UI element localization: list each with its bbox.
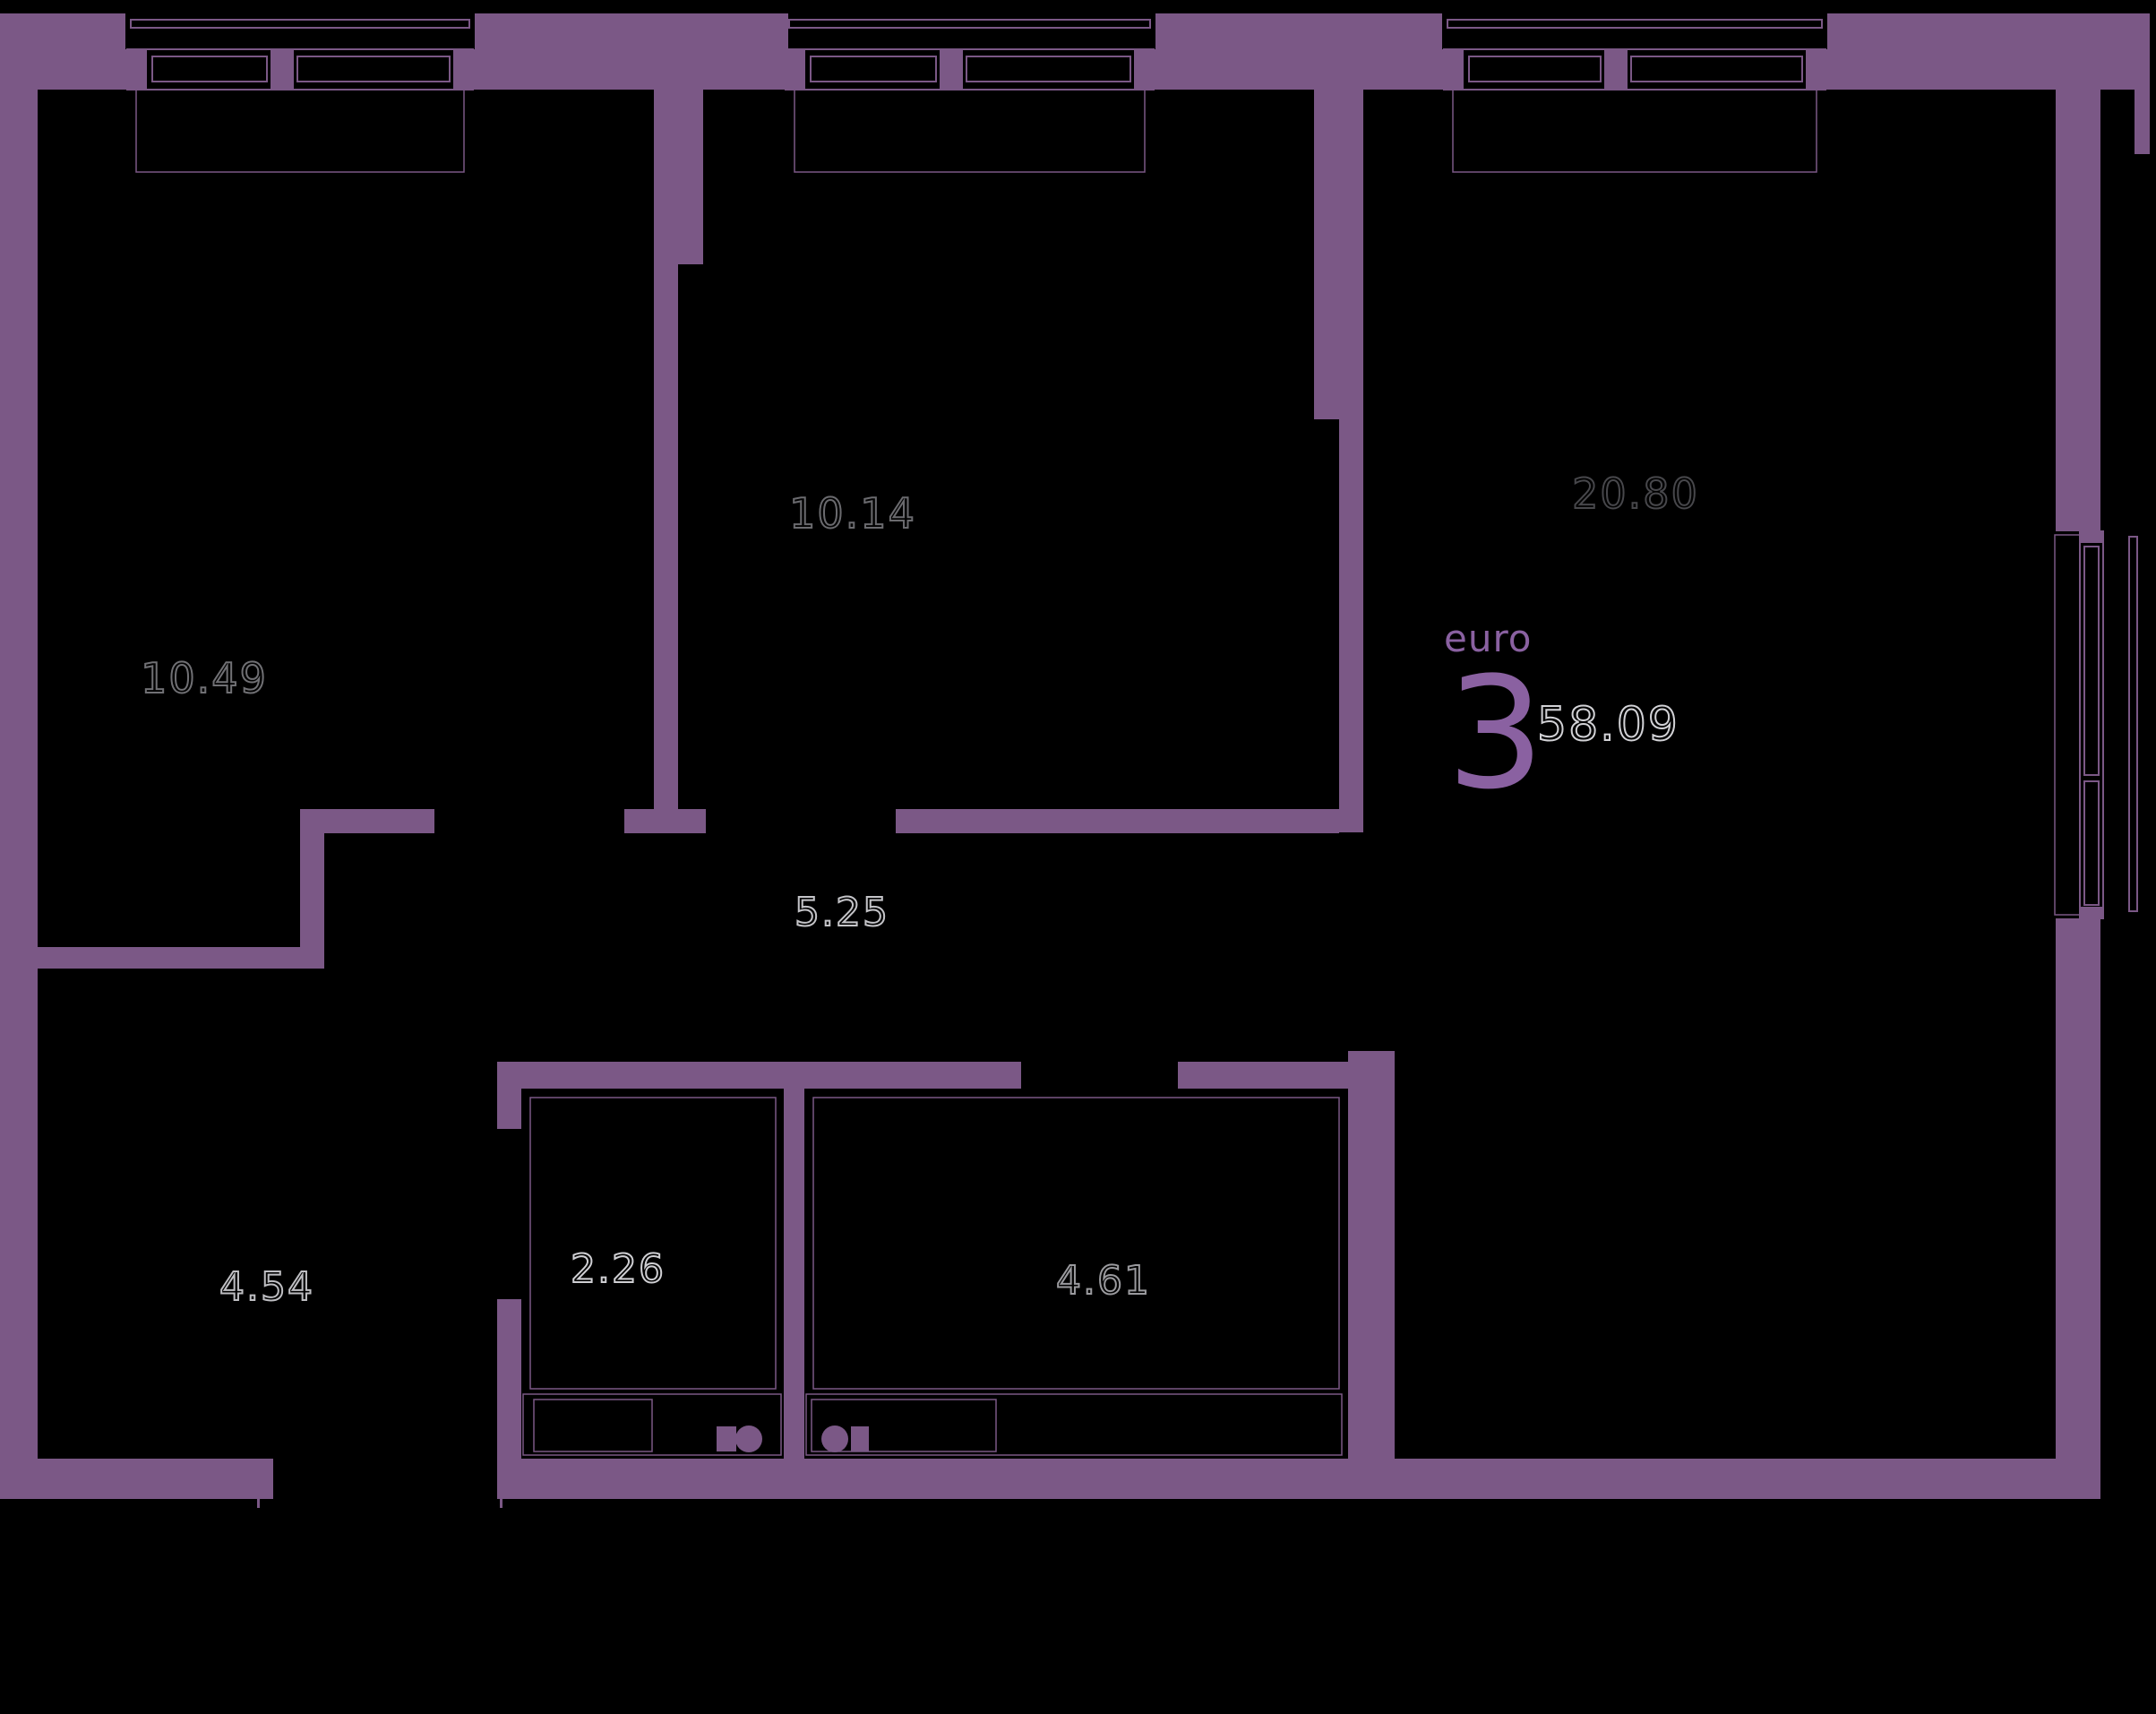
room-inner-outline	[530, 1098, 776, 1389]
window-sill	[136, 90, 464, 172]
window-blocks	[125, 49, 2103, 918]
window-2	[786, 20, 1154, 172]
wall-segment	[497, 1089, 521, 1129]
wall-segment	[784, 1089, 804, 1459]
window-frame	[2080, 531, 2103, 918]
window-frame	[1444, 49, 1825, 90]
wall-segment	[1827, 13, 2150, 90]
window-sill	[1453, 90, 1817, 172]
window-endcap	[784, 49, 805, 90]
duct-strip	[806, 1394, 1342, 1455]
unit-rooms-count: 3	[1447, 643, 1544, 823]
wall-segment	[497, 1062, 1021, 1089]
apartment-floor-plan: 10.49 10.14 20.80 5.25 2.26 4.61 4.54 eu…	[0, 0, 2156, 1714]
window-frame	[786, 49, 1154, 90]
door-post	[851, 1426, 869, 1451]
wall-segment	[300, 809, 434, 833]
wall-segment	[654, 79, 703, 264]
wall-segment	[2056, 90, 2100, 531]
room-area-labels: 10.49 10.14 20.80 5.25 2.26 4.61 4.54	[141, 469, 1699, 1310]
door-knob-icon	[821, 1425, 848, 1452]
window-mullion	[1604, 49, 1628, 90]
wall-segment	[896, 809, 1339, 833]
wall-segment	[0, 1459, 273, 1499]
window-sash	[1631, 56, 1802, 82]
window-endcap	[1442, 49, 1464, 90]
door-jamb-tick	[257, 1499, 260, 1508]
door-jamb-tick	[500, 1499, 502, 1508]
unit-type-badge: euro 3 58.09	[1444, 616, 1679, 823]
room-area-label-bedroom-2: 10.14	[789, 489, 916, 538]
room-area-label-entry-hall: 4.54	[219, 1264, 314, 1310]
wall-segment	[475, 13, 788, 90]
room-area-label-corridor: 5.25	[795, 890, 889, 935]
window-sash	[152, 56, 267, 82]
wall-segment	[497, 1299, 521, 1459]
wall-segment	[654, 264, 678, 809]
wall-segment	[1178, 1062, 1348, 1089]
wall-segment	[2056, 918, 2100, 1499]
window-sill	[795, 90, 1145, 172]
unit-total-area: 58.09	[1537, 698, 1679, 752]
wall-segment	[38, 947, 324, 969]
thin-frames	[127, 20, 2137, 1455]
door-post	[717, 1426, 736, 1451]
room-inner-outline	[813, 1098, 1339, 1389]
window-endcap	[453, 49, 475, 90]
window-sash	[1469, 56, 1601, 82]
wall-segment	[1339, 419, 1363, 832]
window-sash	[966, 56, 1130, 82]
window-sash	[811, 56, 936, 82]
wall-segment	[1155, 13, 1442, 90]
window-sill	[2055, 535, 2080, 915]
room-area-label-bathroom: 4.61	[1056, 1258, 1151, 1304]
room-area-label-living-room: 20.80	[1572, 469, 1699, 518]
wall-segment	[0, 13, 125, 90]
window-endcap	[1134, 49, 1155, 90]
window-sash	[297, 56, 450, 82]
fixture-outline	[534, 1400, 652, 1451]
window-endcap	[2080, 907, 2103, 918]
window-frame	[127, 49, 473, 90]
window-mullion	[940, 49, 963, 90]
window-endcap	[2080, 531, 2103, 543]
window-ledge	[131, 20, 469, 28]
window-endcap	[1806, 49, 1827, 90]
window-3	[1444, 20, 1825, 172]
door-knob-icon	[735, 1425, 762, 1452]
window-ledge	[789, 20, 1150, 28]
door-leaf	[2084, 547, 2099, 775]
room-area-label-water-closet: 2.26	[571, 1246, 666, 1292]
balcony-door	[2055, 531, 2137, 918]
window-ledge	[1447, 20, 1822, 28]
window-1	[127, 20, 473, 172]
wall-segment	[1314, 79, 1363, 419]
wall-segment	[0, 90, 38, 1499]
window-endcap	[125, 49, 147, 90]
wall-segment	[624, 809, 706, 833]
floor-plan-page: 10.49 10.14 20.80 5.25 2.26 4.61 4.54 eu…	[0, 0, 2156, 1714]
room-area-label-bedroom-1: 10.49	[141, 654, 268, 702]
wall-segment	[2135, 90, 2150, 154]
window-ledge	[2129, 537, 2137, 911]
wall-segment	[497, 1459, 2100, 1499]
window-mullion	[271, 49, 294, 90]
wall-segment	[1348, 1051, 1395, 1459]
window-sash	[2084, 781, 2099, 905]
